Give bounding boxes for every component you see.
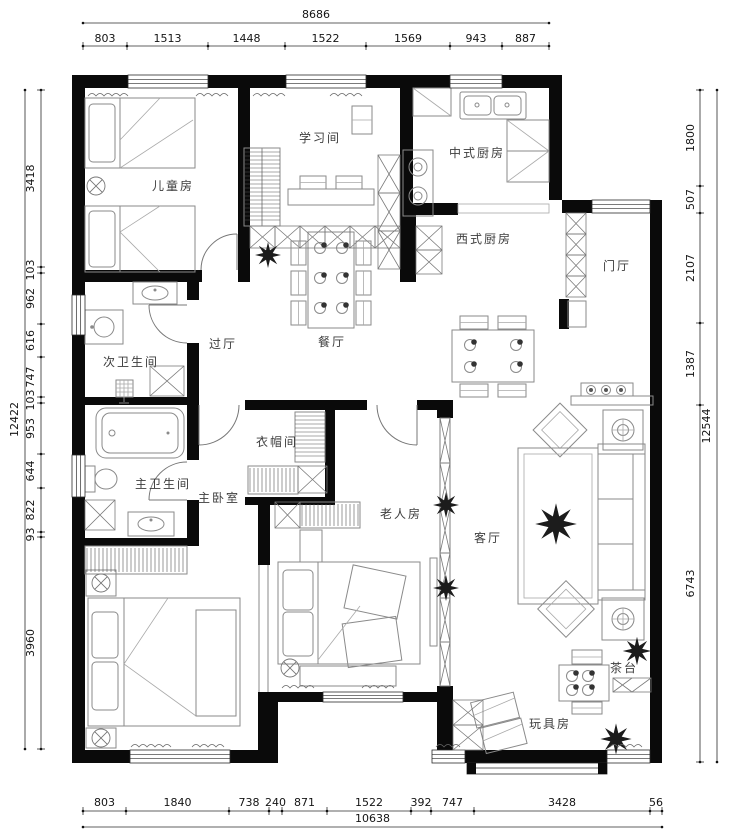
dimension-value: 3418 [24, 165, 37, 193]
dimension-value: 240 [265, 796, 286, 809]
dimension-value: 962 [24, 288, 37, 309]
window [432, 750, 465, 763]
dimension-value: 871 [294, 796, 315, 809]
dimension-value: 1840 [164, 796, 192, 809]
window [128, 75, 208, 88]
window [72, 295, 85, 335]
room-label-hallway: 过厅 [209, 337, 237, 351]
dimension-value: 3428 [548, 796, 576, 809]
bay-window [467, 763, 607, 774]
canvas-background [0, 0, 740, 840]
window [607, 750, 650, 763]
window [592, 200, 650, 213]
dimension-value: 1569 [394, 32, 422, 45]
window [450, 75, 502, 88]
room-label-entrance-hall: 门厅 [603, 258, 631, 273]
dimension-value: 3960 [24, 629, 37, 657]
dimension-value: 8686 [302, 8, 330, 21]
dimension-value: 2107 [684, 254, 697, 282]
dimension-value: 943 [466, 32, 487, 45]
dimension-value: 93 [24, 528, 37, 542]
dimension-value: 392 [411, 796, 432, 809]
room-label-study-room: 学习间 [299, 130, 341, 145]
dimension-value: 887 [515, 32, 536, 45]
floor-plan: 儿童房 学习间 中式厨房 西式厨房 门厅 过厅 餐厅 次卫生间 衣帽间 主卫生间… [0, 0, 740, 840]
room-label-western-kitchen: 西式厨房 [456, 231, 512, 246]
room-label-chinese-kitchen: 中式厨房 [449, 145, 505, 160]
dimension-value: 616 [24, 330, 37, 351]
room-label-dining-room: 餐厅 [318, 334, 346, 349]
room-label-tea-table: 茶台 [610, 660, 638, 675]
dimension-value: 747 [24, 367, 37, 388]
dimension-value: 6743 [684, 570, 697, 598]
room-label-master-bedroom: 主卧室 [198, 490, 240, 505]
dimension-value: 803 [94, 796, 115, 809]
window [72, 455, 85, 497]
dimension-value: 103 [24, 390, 37, 411]
window [286, 75, 366, 88]
dimension-value: 12422 [8, 402, 21, 437]
dimension-value: 1513 [154, 32, 182, 45]
room-label-toy-room: 玩具房 [529, 716, 571, 731]
dimension-value: 1800 [684, 124, 697, 152]
dimension-value: 822 [24, 500, 37, 521]
window [130, 750, 230, 763]
dimension-value: 1387 [684, 350, 697, 378]
dimension-value: 1448 [233, 32, 261, 45]
dimension-value: 953 [24, 418, 37, 439]
room-label-children-room: 儿童房 [152, 178, 194, 193]
room-label-elderly-room: 老人房 [380, 506, 422, 521]
dimension-value: 1522 [312, 32, 340, 45]
dimension-value: 747 [442, 796, 463, 809]
room-label-cloakroom: 衣帽间 [256, 434, 298, 449]
dimension-value: 10638 [355, 812, 390, 825]
room-label-master-bathroom: 主卫生间 [135, 477, 191, 491]
dimension-value: 12544 [700, 409, 713, 444]
dimension-value: 507 [684, 189, 697, 210]
dimension-value: 644 [24, 461, 37, 482]
dimension-value: 738 [239, 796, 260, 809]
dimension-value: 103 [24, 260, 37, 281]
window [323, 692, 403, 702]
dimension-value: 803 [95, 32, 116, 45]
dimension-value: 1522 [355, 796, 383, 809]
dimension-value: 56 [649, 796, 663, 809]
room-label-living-room: 客厅 [474, 530, 502, 545]
